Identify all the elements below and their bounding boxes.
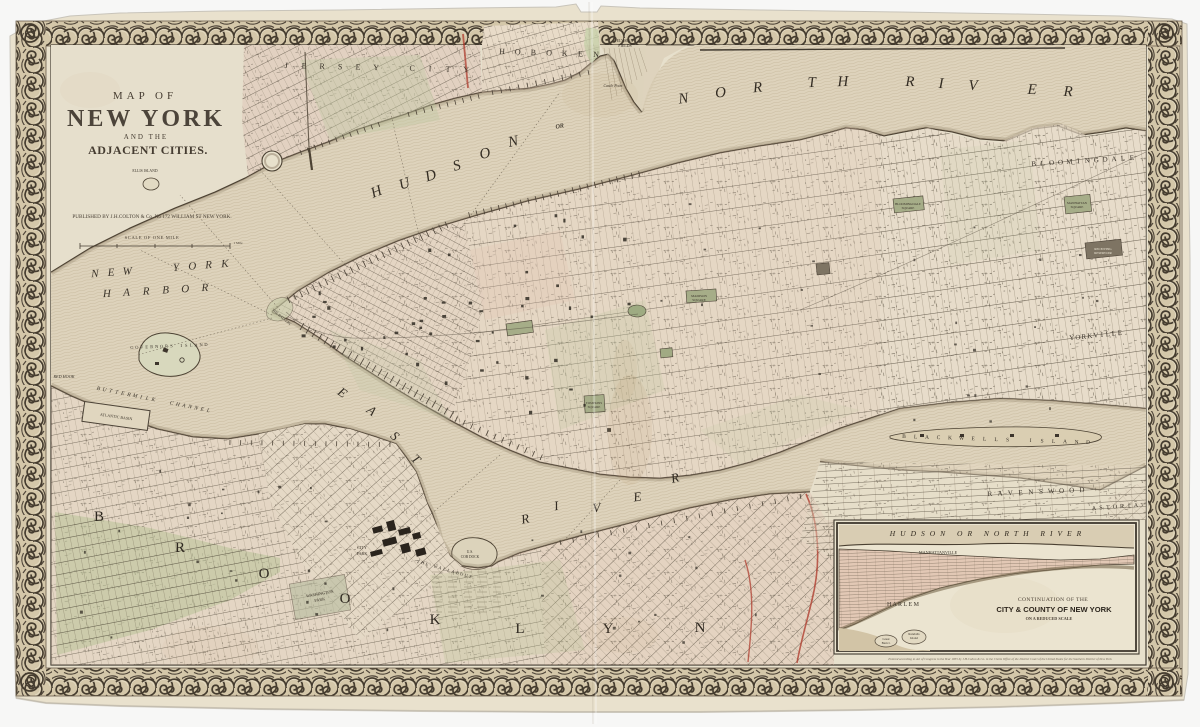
svg-text:B: B <box>902 434 906 440</box>
svg-text:D: D <box>1102 155 1108 163</box>
svg-text:O: O <box>546 48 552 57</box>
svg-text:RED HOOK: RED HOOK <box>52 374 74 379</box>
svg-text:I: I <box>1128 503 1130 509</box>
svg-text:O: O <box>1049 159 1055 167</box>
svg-text:K: K <box>948 435 952 441</box>
svg-text:MANHATTANVILLE: MANHATTANVILLE <box>919 550 958 555</box>
svg-text:U.S.: U.S. <box>467 550 473 554</box>
svg-text:HUDSON OR NORTH RIVER: HUDSON OR NORTH RIVER <box>889 529 1086 538</box>
svg-text:Y: Y <box>373 63 379 72</box>
svg-text:PUBLISHED BY J.H.COLTON & Co.: PUBLISHED BY J.H.COLTON & Co. No 172 WIL… <box>72 214 231 220</box>
svg-text:R: R <box>204 259 213 271</box>
svg-text:A: A <box>925 435 929 441</box>
svg-text:R: R <box>150 344 153 349</box>
svg-text:E: E <box>578 49 583 58</box>
svg-text:L: L <box>515 621 524 637</box>
svg-text:A: A <box>1111 155 1117 163</box>
svg-text:O: O <box>340 591 351 607</box>
svg-text:S: S <box>338 62 343 71</box>
svg-text:R: R <box>1062 84 1073 100</box>
svg-text:R: R <box>1081 333 1087 341</box>
svg-text:L: L <box>1105 330 1110 338</box>
svg-text:T: T <box>1106 505 1110 511</box>
svg-text:B: B <box>94 509 104 525</box>
svg-text:L: L <box>190 343 193 348</box>
svg-text:S: S <box>1099 505 1103 511</box>
svg-text:O: O <box>515 47 521 56</box>
svg-text:H: H <box>499 47 505 56</box>
svg-text:E: E <box>355 62 360 71</box>
svg-text:Island: Island <box>910 636 918 640</box>
svg-text:MAP OF: MAP OF <box>113 90 177 102</box>
svg-text:R: R <box>200 282 208 294</box>
svg-text:N: N <box>593 50 599 59</box>
svg-text:1 Mile: 1 Mile <box>234 241 243 245</box>
svg-text:B: B <box>1031 160 1037 168</box>
svg-text:V: V <box>1093 331 1099 339</box>
svg-text:RESERVOIR: RESERVOIR <box>1094 251 1112 255</box>
svg-text:O: O <box>1058 158 1064 166</box>
svg-text:A: A <box>997 490 1002 498</box>
svg-text:K: K <box>1087 332 1093 340</box>
svg-text:H: H <box>102 288 112 300</box>
svg-text:L: L <box>1111 329 1116 337</box>
svg-text:S: S <box>1040 438 1043 444</box>
svg-text:O: O <box>1075 333 1081 341</box>
svg-text:G: G <box>1093 156 1099 164</box>
svg-text:O: O <box>714 84 727 101</box>
svg-text:R: R <box>1120 504 1124 510</box>
svg-text:SQUARE: SQUARE <box>692 298 706 302</box>
svg-text:S: S <box>1006 437 1009 443</box>
svg-text:COB DOCK: COB DOCK <box>461 555 480 559</box>
svg-text:D: D <box>1086 440 1090 446</box>
svg-text:Y: Y <box>463 65 469 74</box>
svg-text:NEW YORK: NEW YORK <box>67 106 225 132</box>
svg-text:SCALE OF ONE MILE: SCALE OF ONE MILE <box>125 235 180 240</box>
svg-text:E: E <box>1026 82 1037 98</box>
svg-text:N: N <box>1074 440 1078 446</box>
svg-text:E: E <box>1018 489 1023 497</box>
svg-text:N: N <box>90 268 100 280</box>
svg-text:K: K <box>562 49 568 58</box>
svg-text:ADJACENT CITIES.: ADJACENT CITIES. <box>88 143 208 157</box>
svg-text:A: A <box>122 287 130 299</box>
svg-text:ᴏʀ: ᴏʀ <box>554 119 564 130</box>
svg-text:R: R <box>165 344 168 349</box>
svg-text:K: K <box>430 612 441 628</box>
svg-text:R: R <box>175 540 185 556</box>
svg-text:R: R <box>142 285 150 297</box>
svg-text:N: N <box>1028 488 1033 496</box>
svg-text:T: T <box>445 64 450 73</box>
svg-text:H: H <box>836 74 850 90</box>
svg-text:O: O <box>188 260 197 272</box>
svg-text:B: B <box>531 48 537 57</box>
svg-text:O: O <box>1069 486 1074 494</box>
svg-text:O: O <box>259 566 270 582</box>
svg-text:A: A <box>1063 439 1067 445</box>
svg-text:R: R <box>751 80 763 97</box>
svg-text:J: J <box>284 61 288 70</box>
svg-text:D: D <box>1079 486 1084 494</box>
svg-text:Entered according to Act of Co: Entered according to Act of Congress in … <box>887 657 1112 661</box>
svg-text:K: K <box>220 258 230 270</box>
svg-text:ELLIS ISLAND: ELLIS ISLAND <box>132 169 157 173</box>
svg-text:E: E <box>145 344 148 349</box>
svg-text:R: R <box>904 74 914 90</box>
svg-text:E: E <box>1117 329 1122 337</box>
svg-text:H A R L E M: H A R L E M <box>887 602 920 608</box>
svg-text:L: L <box>1040 159 1045 167</box>
svg-text:W: W <box>122 265 133 278</box>
svg-text:N: N <box>1085 157 1091 165</box>
svg-text:SQUARE: SQUARE <box>1071 205 1084 209</box>
svg-text:B: B <box>162 284 169 296</box>
svg-text:AND THE: AND THE <box>124 133 168 141</box>
svg-text:Barn I.: Barn I. <box>882 641 891 645</box>
svg-text:E: E <box>106 267 115 279</box>
svg-text:O: O <box>181 283 189 295</box>
svg-text:L: L <box>1121 154 1126 162</box>
svg-text:N: N <box>695 620 706 636</box>
svg-text:C: C <box>937 435 941 441</box>
svg-text:FIELDS: FIELDS <box>618 43 632 48</box>
svg-text:R: R <box>987 490 992 498</box>
svg-text:O: O <box>1059 487 1064 495</box>
svg-text:C: C <box>409 64 415 73</box>
svg-text:S: S <box>1039 488 1043 496</box>
svg-text:E: E <box>301 61 306 70</box>
svg-text:W: W <box>1048 487 1055 495</box>
svg-text:V: V <box>1008 489 1013 497</box>
svg-text:SQUARE: SQUARE <box>902 206 915 210</box>
svg-text:Y: Y <box>1069 334 1075 342</box>
